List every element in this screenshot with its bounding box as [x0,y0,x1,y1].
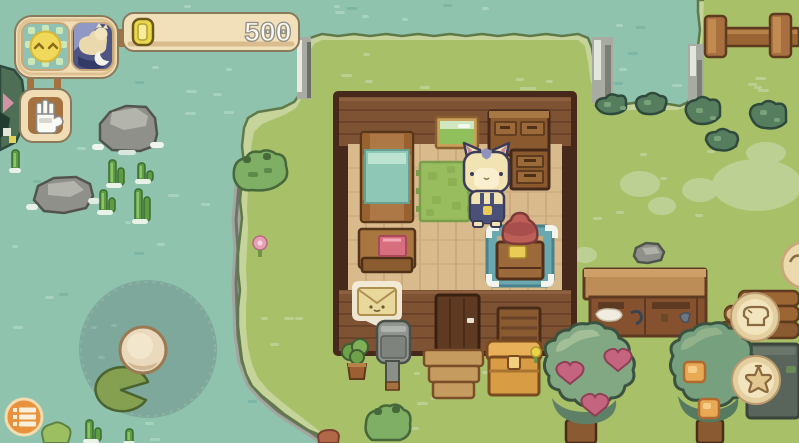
svg-text:500: 500 [244,19,292,50]
